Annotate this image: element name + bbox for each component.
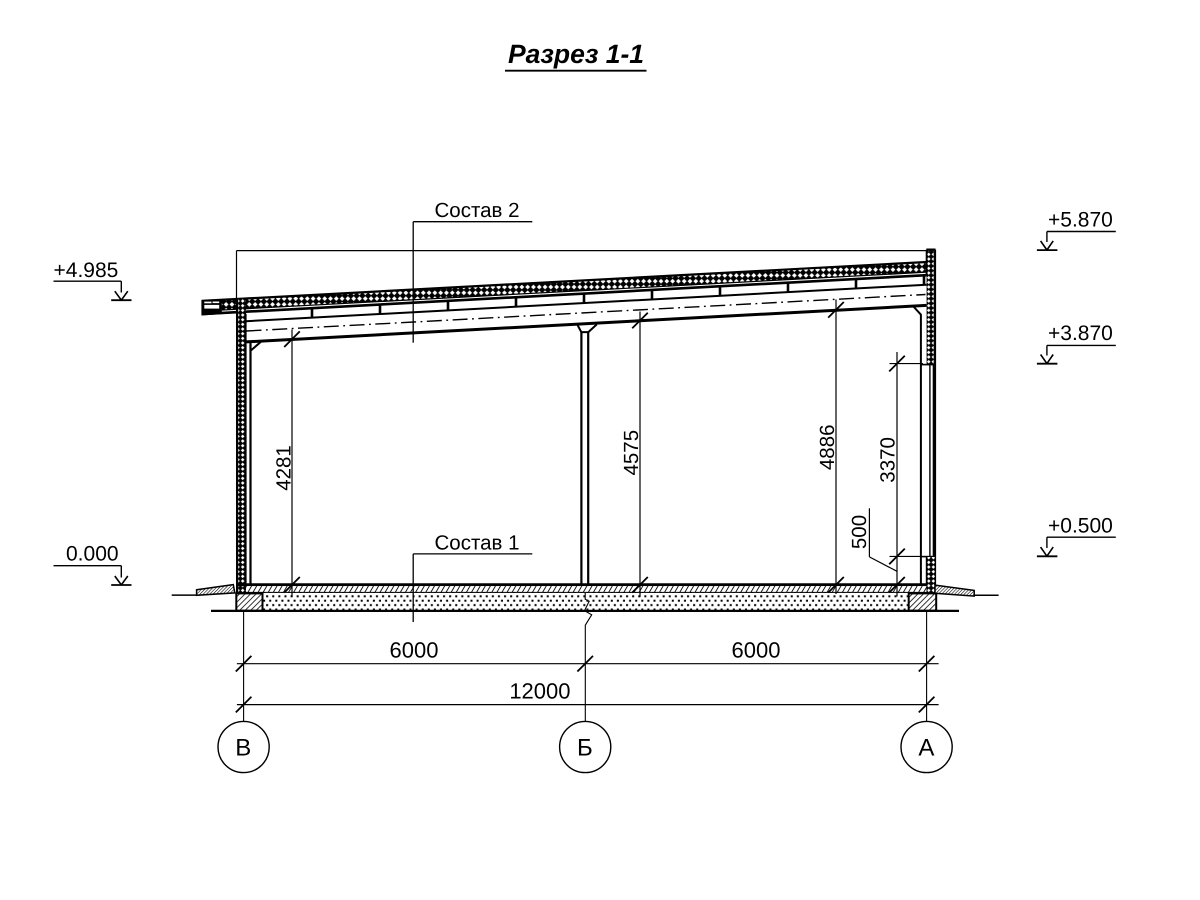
svg-text:Б: Б	[577, 734, 593, 761]
svg-text:6000: 6000	[390, 637, 439, 662]
svg-text:Состав 1: Состав 1	[435, 531, 520, 554]
svg-text:4886: 4886	[816, 424, 839, 470]
svg-text:Разрез 1-1: Разрез 1-1	[508, 39, 644, 69]
svg-text:Состав 2: Состав 2	[435, 199, 520, 222]
svg-text:4281: 4281	[272, 445, 295, 491]
svg-text:+5.870: +5.870	[1048, 208, 1113, 231]
svg-text:+4.985: +4.985	[54, 259, 119, 282]
svg-text:4575: 4575	[620, 430, 643, 476]
svg-text:+0.500: +0.500	[1048, 514, 1113, 537]
svg-text:В: В	[235, 734, 251, 761]
svg-text:+3.870: +3.870	[1048, 322, 1113, 345]
svg-text:А: А	[918, 734, 934, 761]
svg-text:3370: 3370	[877, 437, 900, 483]
svg-text:6000: 6000	[732, 637, 781, 662]
svg-text:500: 500	[848, 515, 871, 549]
svg-text:12000: 12000	[509, 678, 570, 703]
svg-text:0.000: 0.000	[66, 543, 119, 566]
